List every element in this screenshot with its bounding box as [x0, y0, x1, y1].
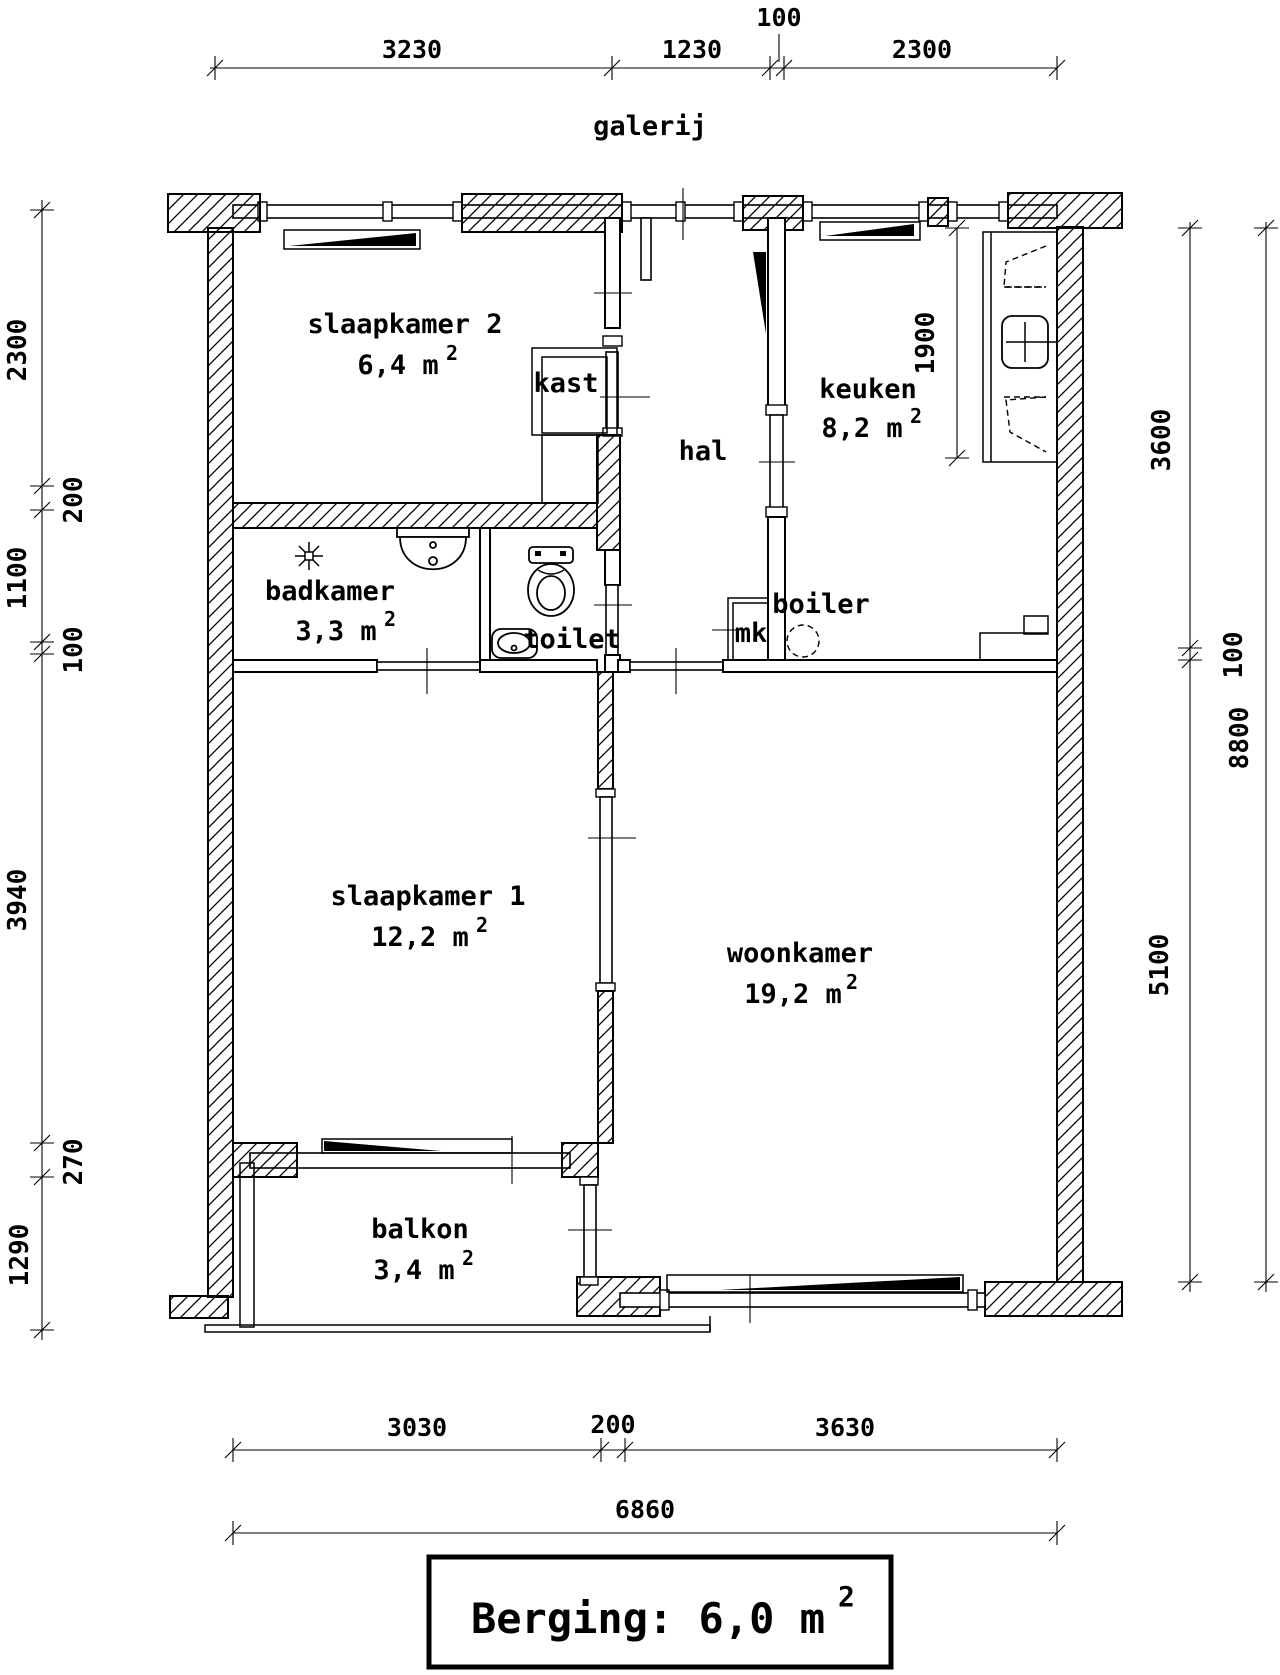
label-mk: mk: [735, 618, 768, 649]
storage-box: Berging: 6,0 m 2: [429, 1557, 891, 1667]
window-jamb: [453, 202, 462, 221]
label-hal: hal: [679, 436, 728, 467]
door-badkamer: [377, 662, 480, 670]
dim-top-100: 100: [756, 3, 801, 32]
dim-right-8800: 8800: [1225, 707, 1255, 770]
dim-kitchen-1900: 1900: [911, 312, 941, 375]
dim-top-2300: 2300: [892, 35, 952, 64]
balkon-edge-south: [205, 1325, 710, 1332]
wall-s2-hal: [605, 218, 620, 328]
wall-top-pier-3: [928, 198, 948, 226]
dim-left-2300: 2300: [3, 319, 33, 382]
boiler-circle: [787, 625, 819, 657]
dim-bottom-3630: 3630: [815, 1413, 875, 1442]
label-kast: kast: [533, 368, 598, 399]
label-keuken: keuken: [819, 374, 917, 405]
wall-toilet-hal: [605, 550, 620, 585]
window-jamb: [660, 1290, 669, 1310]
wall-left: [208, 228, 233, 1297]
dim-left-200: 200: [59, 477, 89, 524]
dim-left-100: 100: [59, 627, 89, 674]
dim-top-1230: 1230: [662, 35, 722, 64]
window-mullion: [383, 202, 392, 221]
window-jamb: [948, 202, 957, 221]
area-slaapkamer1: 12,2 m: [371, 922, 469, 953]
wall-left-foot: [170, 1296, 228, 1318]
wall-badkamer-south: [233, 660, 377, 672]
toilet-bowl: [528, 547, 574, 616]
wall-badkamer-north: [233, 503, 597, 528]
label-badkamer: badkamer: [265, 576, 395, 607]
dim-bottom-segments: [225, 1438, 1065, 1462]
wall-top-left-corner: [168, 194, 260, 232]
area-keuken: 8,2 m: [821, 413, 902, 444]
area-sup: 2: [384, 607, 396, 631]
kast-lower-box: [542, 435, 598, 503]
floorplan-page: 3230 1230 100 2300 2300 200 1100 100 394…: [0, 0, 1280, 1675]
window-jamb: [622, 202, 631, 221]
wall-balkon-west: [240, 1163, 254, 1327]
wall-s1-woonkamer: [598, 672, 613, 789]
dim-bottom-3030: 3030: [387, 1413, 447, 1442]
kitchen-counter: [983, 232, 1057, 462]
area-sup: 2: [476, 913, 488, 937]
area-badkamer: 3,3 m: [295, 616, 376, 647]
dim-right-5100: 5100: [1145, 934, 1175, 997]
area-slaapkamer2: 6,4 m: [357, 350, 438, 381]
bathroom-sink: [397, 528, 469, 569]
storage-label: Berging: 6,0 m: [471, 1594, 825, 1643]
dim-right-inner: [1178, 220, 1202, 1292]
window-jamb: [968, 1290, 977, 1310]
label-balkon: balkon: [371, 1214, 469, 1245]
window-jamb: [919, 202, 928, 221]
wall-hal-south: [723, 660, 1057, 672]
dim-bottom-6860: 6860: [615, 1495, 675, 1524]
dim-kitchen: [945, 220, 969, 466]
dim-bottom-total: [225, 1521, 1065, 1545]
door-kast: [606, 352, 618, 430]
shower-symbol: [295, 542, 323, 570]
wall-hal-keuken: [768, 218, 785, 408]
wall-balkon-north-right: [562, 1143, 598, 1177]
area-balkon: 3,4 m: [373, 1255, 454, 1286]
entry-side-panel: [641, 218, 651, 280]
area-sup: 2: [846, 970, 858, 994]
door-balkon: [584, 1185, 596, 1277]
dim-top-3230: 3230: [382, 35, 442, 64]
wall-top-right-corner: [1008, 193, 1122, 228]
area-sup: 2: [462, 1246, 474, 1270]
window-jamb: [734, 202, 743, 221]
interior-walls: [205, 218, 1057, 1332]
dim-right-outer: [1254, 220, 1278, 1292]
dim-left-1290: 1290: [5, 1224, 35, 1287]
label-toilet: toilet: [523, 624, 621, 655]
dim-left-3940: 3940: [3, 869, 33, 932]
area-sup: 2: [446, 341, 458, 365]
label-galerij: galerij: [593, 111, 707, 142]
wall-top-pier-1: [462, 194, 622, 232]
window-woonkamer-south: [620, 1293, 985, 1307]
dim-left: [30, 200, 54, 1340]
storage-sup: 2: [838, 1580, 855, 1613]
floorplan-drawing: 3230 1230 100 2300 2300 200 1100 100 394…: [0, 0, 1280, 1675]
area-woonkamer: 19,2 m: [744, 979, 842, 1010]
wall-right: [1057, 227, 1083, 1282]
wall-kast-hal: [597, 435, 620, 550]
dim-left-1100: 1100: [3, 547, 33, 610]
door-s1-woonkamer: [600, 797, 612, 983]
label-boiler: boiler: [772, 589, 870, 620]
dim-right-3600: 3600: [1147, 409, 1177, 472]
wall-badkamer-toilet: [480, 528, 490, 660]
dim-right-100: 100: [1219, 632, 1249, 679]
dim-bottom-200: 200: [590, 1410, 635, 1439]
window-jamb: [999, 202, 1008, 221]
wall-balkon-north-left: [233, 1143, 297, 1177]
wall-bottom-right-corner: [985, 1282, 1122, 1316]
window-jamb: [803, 202, 812, 221]
label-slaapkamer2: slaapkamer 2: [307, 309, 502, 340]
label-woonkamer: woonkamer: [727, 938, 873, 969]
dim-left-270: 270: [59, 1139, 89, 1186]
area-sup: 2: [910, 404, 922, 428]
keuken-step: [980, 633, 1048, 660]
label-slaapkamer1: slaapkamer 1: [330, 881, 525, 912]
radiator-hal: [753, 252, 766, 334]
window-mullion: [676, 202, 685, 221]
fixtures: [295, 232, 1057, 658]
